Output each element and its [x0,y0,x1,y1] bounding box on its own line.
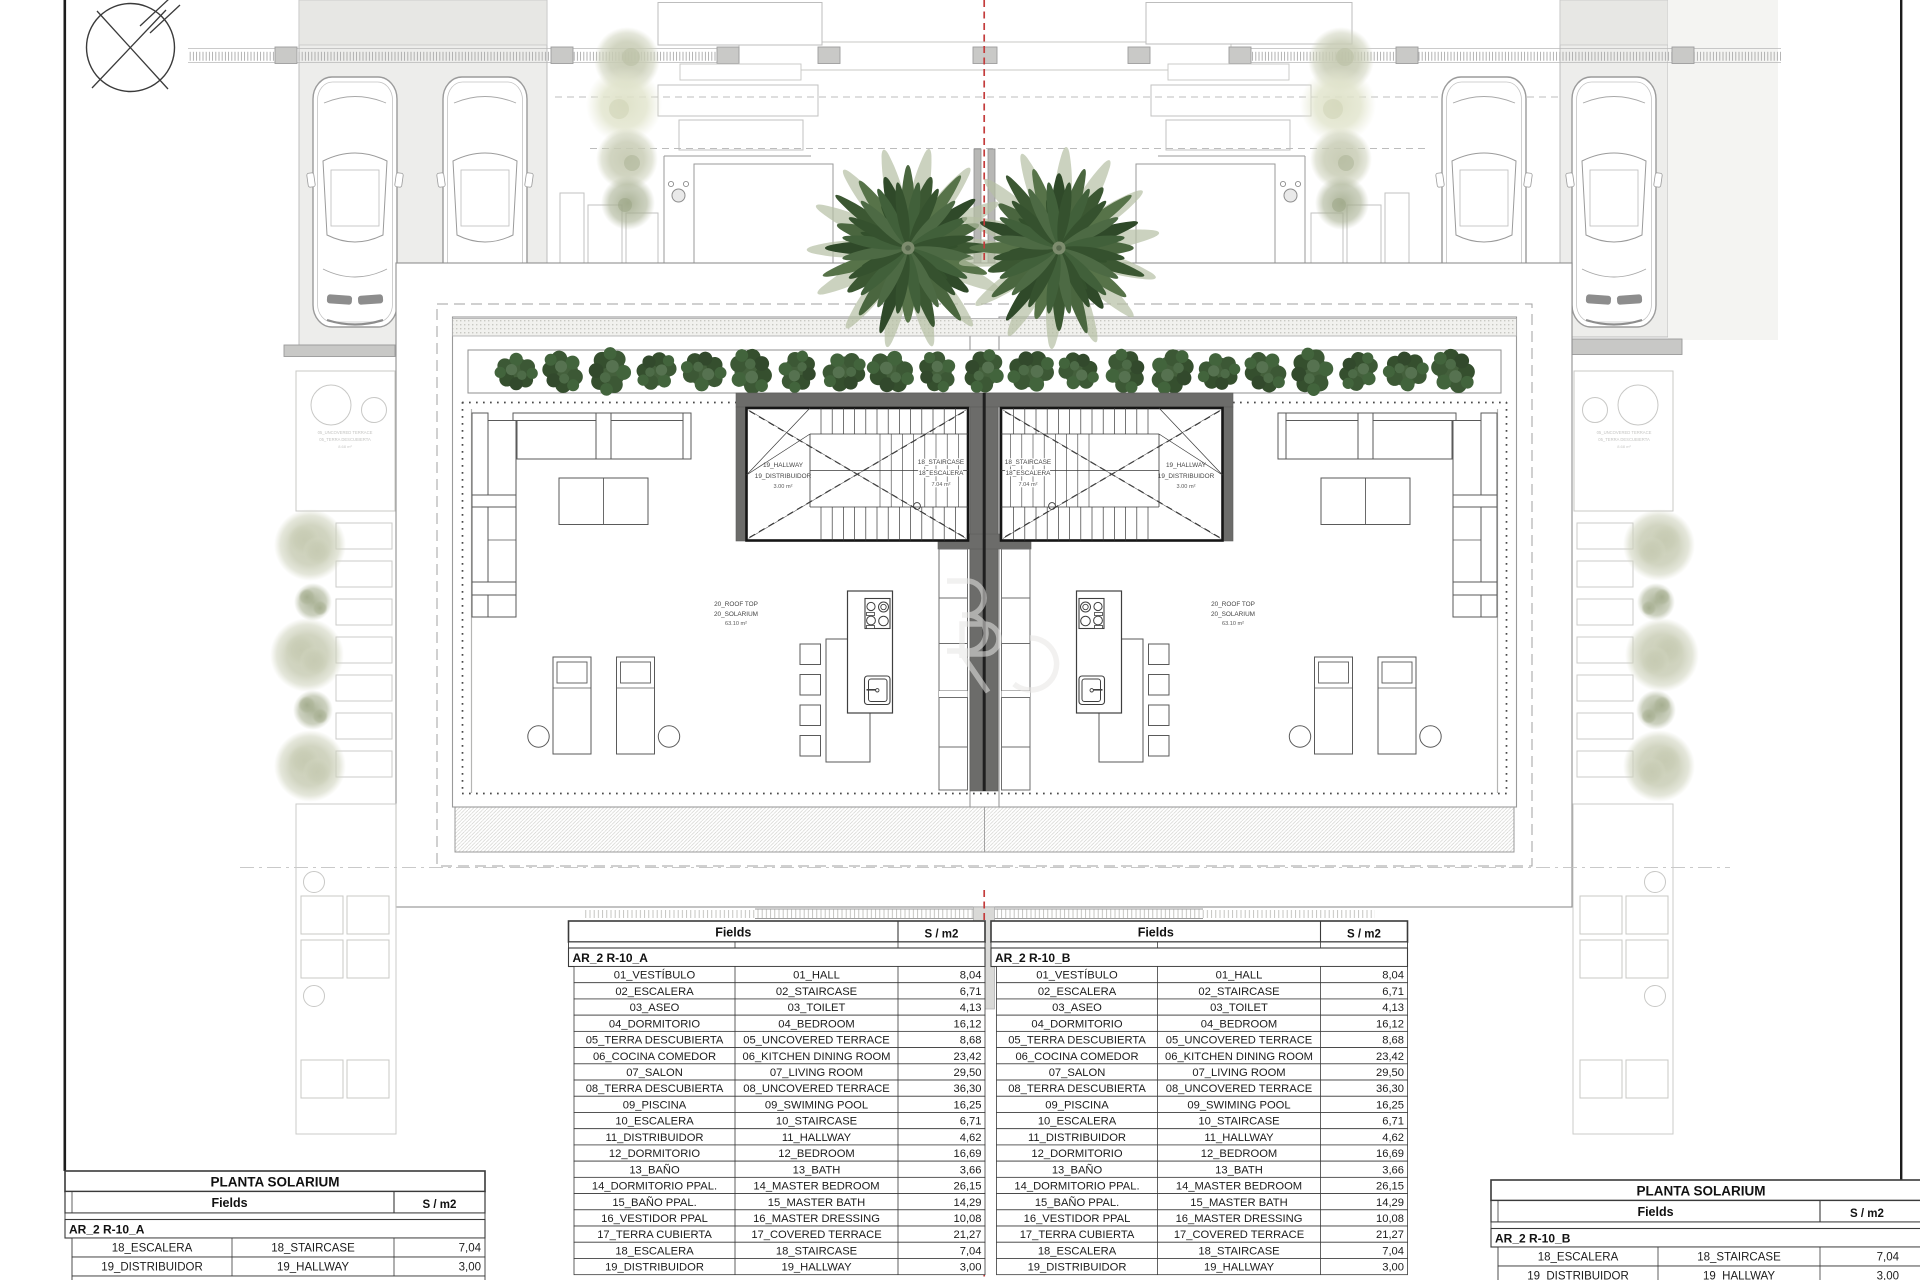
svg-text:21,27: 21,27 [1376,1229,1404,1241]
svg-text:03_ASEO: 03_ASEO [1052,1002,1102,1014]
svg-text:3.00 m²: 3.00 m² [774,484,793,490]
svg-text:S / m2: S / m2 [423,1199,457,1211]
svg-text:05_UNCOVERED TERRACE: 05_UNCOVERED TERRACE [1597,430,1652,435]
svg-text:3,00: 3,00 [960,1262,982,1274]
svg-text:63.10 m²: 63.10 m² [1222,621,1244,627]
svg-text:01_HALL: 01_HALL [793,970,840,982]
svg-text:4,13: 4,13 [1382,1002,1404,1014]
svg-text:15_MASTER BATH: 15_MASTER BATH [1190,1197,1287,1209]
svg-text:10,08: 10,08 [1376,1213,1404,1225]
svg-text:3.00 m²: 3.00 m² [1177,484,1196,490]
svg-text:10_STAIRCASE: 10_STAIRCASE [776,1116,857,1128]
svg-text:17_COVERED TERRACE: 17_COVERED TERRACE [751,1229,881,1241]
svg-text:17_COVERED TERRACE: 17_COVERED TERRACE [1174,1229,1304,1241]
svg-text:AR_2 R-10_A: AR_2 R-10_A [573,951,649,965]
svg-text:36,30: 36,30 [954,1083,982,1095]
svg-text:20_ROOF TOP: 20_ROOF TOP [714,601,758,608]
svg-text:18_ESCALERA: 18_ESCALERA [1006,470,1051,477]
svg-text:06_COCINA COMEDOR: 06_COCINA COMEDOR [1015,1051,1138,1063]
svg-text:19_HALLWAY: 19_HALLWAY [781,1262,852,1274]
svg-text:S / m2: S / m2 [925,929,959,941]
svg-text:16,12: 16,12 [954,1018,982,1030]
svg-text:19_DISTRIBUIDOR: 19_DISTRIBUIDOR [1028,1262,1127,1274]
svg-text:18_STAIRCASE: 18_STAIRCASE [1198,1245,1279,1257]
svg-text:14_DORMITORIO PPAL.: 14_DORMITORIO PPAL. [592,1181,717,1193]
svg-text:AR_2 R-10_B: AR_2 R-10_B [995,951,1071,965]
svg-text:8,04: 8,04 [1382,970,1404,982]
svg-text:18_ESCALERA: 18_ESCALERA [1038,1245,1117,1257]
svg-text:20_SOLARIUM: 20_SOLARIUM [1211,611,1255,618]
svg-text:16_MASTER DRESSING: 16_MASTER DRESSING [753,1213,880,1225]
svg-text:14,29: 14,29 [1376,1197,1404,1209]
svg-text:19_DISTRIBUIDOR: 19_DISTRIBUIDOR [605,1262,704,1274]
svg-text:13_BAÑO: 13_BAÑO [629,1163,680,1176]
svg-text:16,69: 16,69 [1376,1148,1404,1160]
svg-text:06_KITCHEN DINING ROOM: 06_KITCHEN DINING ROOM [1165,1051,1313,1063]
svg-text:17_TERRA CUBIERTA: 17_TERRA CUBIERTA [1020,1229,1135,1241]
svg-text:23,42: 23,42 [1376,1051,1404,1063]
svg-text:04_BEDROOM: 04_BEDROOM [778,1018,854,1030]
svg-text:18_STAIRCASE: 18_STAIRCASE [776,1245,857,1257]
svg-text:08_TERRA DESCUBIERTA: 08_TERRA DESCUBIERTA [586,1083,724,1095]
svg-text:Fields: Fields [1138,926,1174,940]
svg-text:63.10 m²: 63.10 m² [725,621,747,627]
svg-text:03_TOILET: 03_TOILET [788,1002,846,1014]
svg-text:19_DISTRIBUIDOR: 19_DISTRIBUIDOR [1158,473,1215,480]
svg-text:08_UNCOVERED TERRACE: 08_UNCOVERED TERRACE [1166,1083,1313,1095]
svg-text:04_DORMITORIO: 04_DORMITORIO [1031,1018,1122,1030]
svg-text:09_SWIMING POOL: 09_SWIMING POOL [765,1099,868,1111]
svg-text:19_HALLWAY: 19_HALLWAY [763,462,804,469]
svg-text:29,50: 29,50 [954,1067,982,1079]
svg-text:07_SALON: 07_SALON [626,1067,683,1079]
svg-text:04_BEDROOM: 04_BEDROOM [1201,1018,1277,1030]
svg-text:01_VESTÍBULO: 01_VESTÍBULO [1036,969,1118,982]
svg-text:3,66: 3,66 [1382,1164,1404,1176]
svg-text:16,12: 16,12 [1376,1018,1404,1030]
svg-text:05_TERRA DESCUBIERTA: 05_TERRA DESCUBIERTA [586,1035,724,1047]
svg-text:4,62: 4,62 [960,1132,982,1144]
svg-text:08_TERRA DESCUBIERTA: 08_TERRA DESCUBIERTA [1008,1083,1146,1095]
svg-text:07_LIVING ROOM: 07_LIVING ROOM [770,1067,863,1079]
svg-text:09_PISCINA: 09_PISCINA [623,1099,687,1111]
svg-text:8.68 m²: 8.68 m² [1617,444,1631,449]
svg-text:02_STAIRCASE: 02_STAIRCASE [776,986,857,998]
svg-text:36,30: 36,30 [1376,1083,1404,1095]
svg-text:4,13: 4,13 [960,1002,982,1014]
svg-text:S / m2: S / m2 [1850,1208,1884,1220]
svg-text:05_TERRA DESCUBIERTA: 05_TERRA DESCUBIERTA [319,437,371,442]
svg-text:14_MASTER BEDROOM: 14_MASTER BEDROOM [1176,1181,1302,1193]
svg-text:17_TERRA CUBIERTA: 17_TERRA CUBIERTA [597,1229,712,1241]
svg-text:14_DORMITORIO PPAL.: 14_DORMITORIO PPAL. [1014,1181,1139,1193]
svg-text:3,00: 3,00 [459,1262,481,1274]
svg-text:16,25: 16,25 [1376,1099,1404,1111]
svg-text:05_UNCOVERED TERRACE: 05_UNCOVERED TERRACE [1166,1035,1313,1047]
svg-text:03_TOILET: 03_TOILET [1210,1002,1268,1014]
svg-text:6,71: 6,71 [1382,1116,1404,1128]
svg-text:10,08: 10,08 [954,1213,982,1225]
svg-text:14,29: 14,29 [954,1197,982,1209]
svg-text:02_ESCALERA: 02_ESCALERA [615,986,694,998]
svg-text:18_STAIRCASE: 18_STAIRCASE [271,1243,355,1255]
svg-text:S / m2: S / m2 [1347,929,1381,941]
svg-text:23,42: 23,42 [954,1051,982,1063]
svg-text:18_STAIRCASE: 18_STAIRCASE [1697,1252,1781,1264]
svg-text:18_ESCALERA: 18_ESCALERA [615,1245,694,1257]
svg-text:11_HALLWAY: 11_HALLWAY [1204,1132,1274,1144]
svg-text:7,04: 7,04 [1877,1252,1900,1264]
svg-text:05_TERRA DESCUBIERTA: 05_TERRA DESCUBIERTA [1598,437,1650,442]
svg-text:20_SOLARIUM: 20_SOLARIUM [714,611,758,618]
svg-text:12_DORMITORIO: 12_DORMITORIO [609,1148,700,1160]
svg-text:15_BAÑO PPAL.: 15_BAÑO PPAL. [612,1196,696,1209]
svg-text:12_BEDROOM: 12_BEDROOM [778,1148,854,1160]
svg-text:6,71: 6,71 [1382,986,1404,998]
svg-text:11_DISTRIBUIDOR: 11_DISTRIBUIDOR [605,1132,703,1144]
svg-text:16_VESTIDOR PPAL: 16_VESTIDOR PPAL [1024,1213,1131,1225]
svg-text:19_DISTRIBUIDOR: 19_DISTRIBUIDOR [101,1262,203,1274]
svg-text:06_KITCHEN DINING ROOM: 06_KITCHEN DINING ROOM [743,1051,891,1063]
svg-text:19_HALLWAY: 19_HALLWAY [1204,1262,1275,1274]
svg-text:7,04: 7,04 [1382,1245,1404,1257]
svg-text:16_MASTER DRESSING: 16_MASTER DRESSING [1176,1213,1303,1225]
svg-text:6,71: 6,71 [960,1116,982,1128]
svg-text:Fields: Fields [211,1196,247,1210]
svg-text:16,25: 16,25 [954,1099,982,1111]
svg-text:7,04: 7,04 [459,1243,482,1255]
svg-text:09_SWIMING POOL: 09_SWIMING POOL [1187,1099,1290,1111]
svg-text:08_UNCOVERED TERRACE: 08_UNCOVERED TERRACE [743,1083,890,1095]
svg-text:18_ESCALERA: 18_ESCALERA [919,470,964,477]
svg-text:15_BAÑO PPAL.: 15_BAÑO PPAL. [1035,1196,1119,1209]
svg-text:13_BATH: 13_BATH [793,1164,841,1176]
svg-text:AR_2 R-10_B: AR_2 R-10_B [1495,1232,1571,1246]
svg-text:11_DISTRIBUIDOR: 11_DISTRIBUIDOR [1028,1132,1126,1144]
svg-text:19_HALLWAY: 19_HALLWAY [1166,462,1207,469]
svg-text:13_BAÑO: 13_BAÑO [1052,1163,1103,1176]
svg-text:Fields: Fields [1637,1205,1673,1219]
svg-text:18_ESCALERA: 18_ESCALERA [112,1243,193,1255]
svg-text:07_SALON: 07_SALON [1049,1067,1106,1079]
svg-text:19_DISTRIBUIDOR: 19_DISTRIBUIDOR [1527,1271,1629,1280]
svg-text:4,62: 4,62 [1382,1132,1404,1144]
svg-text:16_VESTIDOR PPAL: 16_VESTIDOR PPAL [601,1213,708,1225]
svg-text:PLANTA SOLARIUM: PLANTA SOLARIUM [211,1175,340,1190]
svg-text:3,66: 3,66 [960,1164,982,1176]
svg-text:8.68 m²: 8.68 m² [338,444,352,449]
svg-text:19_DISTRIBUIDOR: 19_DISTRIBUIDOR [755,473,812,480]
svg-text:19_HALLWAY: 19_HALLWAY [277,1262,349,1274]
svg-text:05_TERRA DESCUBIERTA: 05_TERRA DESCUBIERTA [1008,1035,1146,1047]
svg-text:7,04: 7,04 [960,1245,982,1257]
svg-text:AR_2 R-10_A: AR_2 R-10_A [69,1223,145,1237]
svg-text:02_ESCALERA: 02_ESCALERA [1038,986,1117,998]
svg-text:05_UNCOVERED TERRACE: 05_UNCOVERED TERRACE [743,1035,890,1047]
svg-text:01_HALL: 01_HALL [1216,970,1263,982]
svg-text:12_DORMITORIO: 12_DORMITORIO [1031,1148,1122,1160]
svg-text:3,00: 3,00 [1382,1262,1404,1274]
svg-text:Fields: Fields [715,926,751,940]
svg-text:12_BEDROOM: 12_BEDROOM [1201,1148,1277,1160]
svg-text:01_VESTÍBULO: 01_VESTÍBULO [614,969,696,982]
svg-text:04_DORMITORIO: 04_DORMITORIO [609,1018,700,1030]
svg-text:05_UNCOVERED TERRACE: 05_UNCOVERED TERRACE [318,430,373,435]
svg-text:18_STAIRCASE: 18_STAIRCASE [1005,459,1051,466]
svg-text:3,00: 3,00 [1877,1271,1899,1280]
svg-text:26,15: 26,15 [1376,1181,1404,1193]
svg-text:8,68: 8,68 [960,1035,982,1047]
svg-text:19_HALLWAY: 19_HALLWAY [1703,1271,1775,1280]
svg-text:8,04: 8,04 [960,970,982,982]
svg-text:29,50: 29,50 [1376,1067,1404,1079]
svg-text:26,15: 26,15 [954,1181,982,1193]
svg-text:PLANTA SOLARIUM: PLANTA SOLARIUM [1637,1184,1766,1199]
svg-text:7.04 m²: 7.04 m² [1019,482,1038,488]
svg-text:09_PISCINA: 09_PISCINA [1045,1099,1109,1111]
svg-text:13_BATH: 13_BATH [1215,1164,1263,1176]
svg-text:10_ESCALERA: 10_ESCALERA [1038,1116,1117,1128]
svg-text:11_HALLWAY: 11_HALLWAY [782,1132,852,1144]
svg-text:07_LIVING ROOM: 07_LIVING ROOM [1192,1067,1285,1079]
svg-text:21,27: 21,27 [954,1229,982,1241]
svg-text:10_STAIRCASE: 10_STAIRCASE [1198,1116,1279,1128]
svg-text:16,69: 16,69 [954,1148,982,1160]
svg-text:6,71: 6,71 [960,986,982,998]
svg-text:02_STAIRCASE: 02_STAIRCASE [1198,986,1279,998]
svg-text:8,68: 8,68 [1382,1035,1404,1047]
svg-text:18_ESCALERA: 18_ESCALERA [1538,1252,1619,1264]
svg-text:03_ASEO: 03_ASEO [630,1002,680,1014]
svg-text:15_MASTER BATH: 15_MASTER BATH [768,1197,865,1209]
svg-text:14_MASTER BEDROOM: 14_MASTER BEDROOM [753,1181,879,1193]
svg-text:18_STAIRCASE: 18_STAIRCASE [918,459,964,466]
svg-text:7.04 m²: 7.04 m² [932,482,951,488]
svg-text:10_ESCALERA: 10_ESCALERA [615,1116,694,1128]
svg-text:06_COCINA COMEDOR: 06_COCINA COMEDOR [593,1051,716,1063]
svg-text:20_ROOF TOP: 20_ROOF TOP [1211,601,1255,608]
